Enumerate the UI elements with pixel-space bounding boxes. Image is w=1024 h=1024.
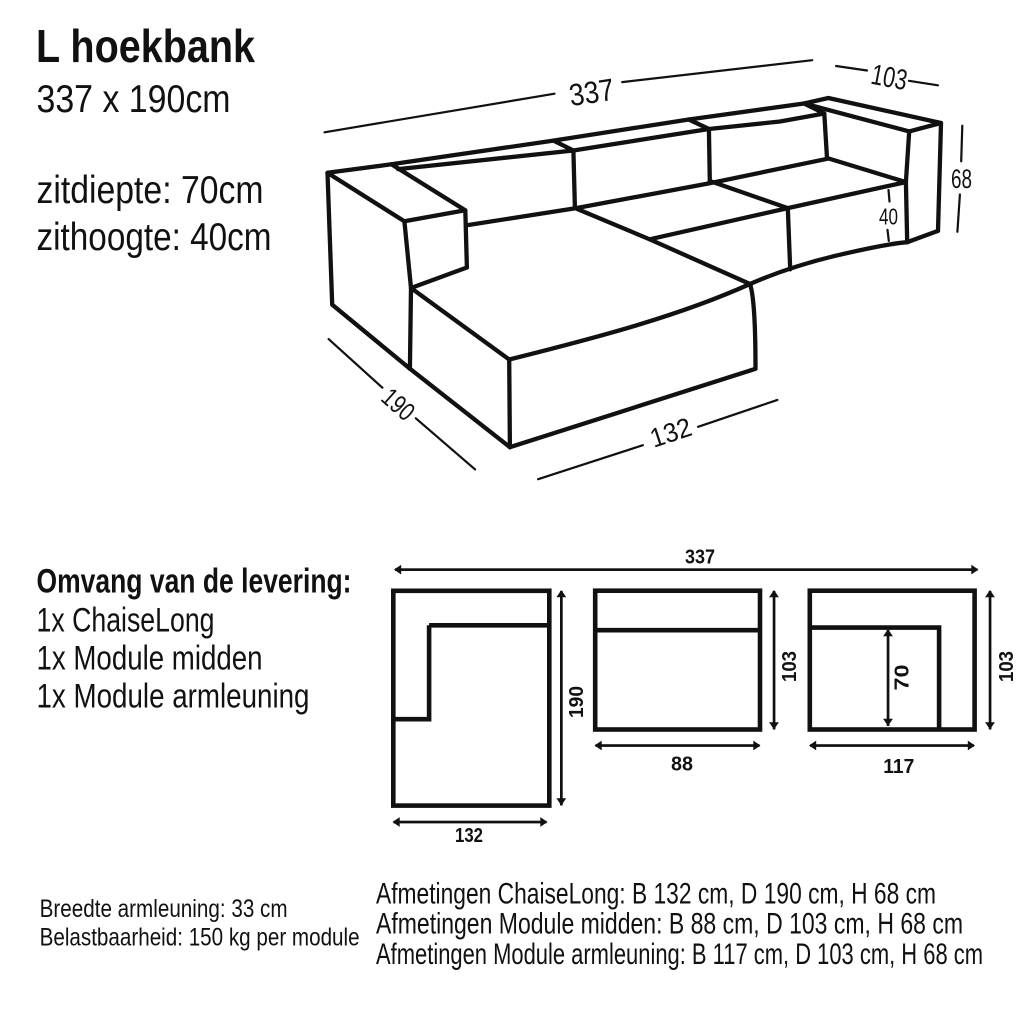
svg-text:zithoogte: 40cm: zithoogte: 40cm bbox=[37, 216, 272, 259]
svg-text:L hoekbank: L hoekbank bbox=[36, 20, 255, 72]
svg-text:Omvang van de levering:: Omvang van de levering: bbox=[37, 563, 352, 601]
svg-text:Afmetingen Module midden: B 88: Afmetingen Module midden: B 88 cm, D 103… bbox=[376, 908, 963, 941]
svg-text:Afmetingen Module armleuning:: Afmetingen Module armleuning: B 117 cm, … bbox=[376, 938, 983, 971]
svg-text:1x Module midden: 1x Module midden bbox=[37, 640, 263, 678]
svg-text:Belastbaarheid: 150 kg per mod: Belastbaarheid: 150 kg per module bbox=[40, 924, 360, 952]
svg-text:88: 88 bbox=[671, 754, 693, 776]
svg-text:70: 70 bbox=[892, 665, 914, 691]
svg-text:68: 68 bbox=[951, 164, 972, 194]
svg-text:103: 103 bbox=[779, 651, 801, 682]
svg-text:132: 132 bbox=[455, 825, 483, 847]
svg-text:Breedte armleuning: 33 cm: Breedte armleuning: 33 cm bbox=[40, 895, 288, 923]
svg-text:103: 103 bbox=[996, 651, 1018, 682]
svg-text:103: 103 bbox=[868, 59, 909, 97]
svg-text:190: 190 bbox=[566, 686, 588, 718]
svg-text:337 x 190cm: 337 x 190cm bbox=[37, 78, 231, 121]
svg-text:337: 337 bbox=[567, 72, 617, 113]
svg-text:zitdiepte: 70cm: zitdiepte: 70cm bbox=[37, 169, 264, 212]
svg-text:337: 337 bbox=[685, 547, 715, 569]
svg-text:Afmetingen ChaiseLong: B 132 c: Afmetingen ChaiseLong: B 132 cm, D 190 c… bbox=[376, 877, 936, 910]
svg-text:1x Module armleuning: 1x Module armleuning bbox=[37, 677, 310, 715]
svg-text:117: 117 bbox=[883, 756, 914, 778]
svg-text:40: 40 bbox=[879, 204, 898, 230]
svg-text:1x ChaiseLong: 1x ChaiseLong bbox=[37, 601, 215, 639]
